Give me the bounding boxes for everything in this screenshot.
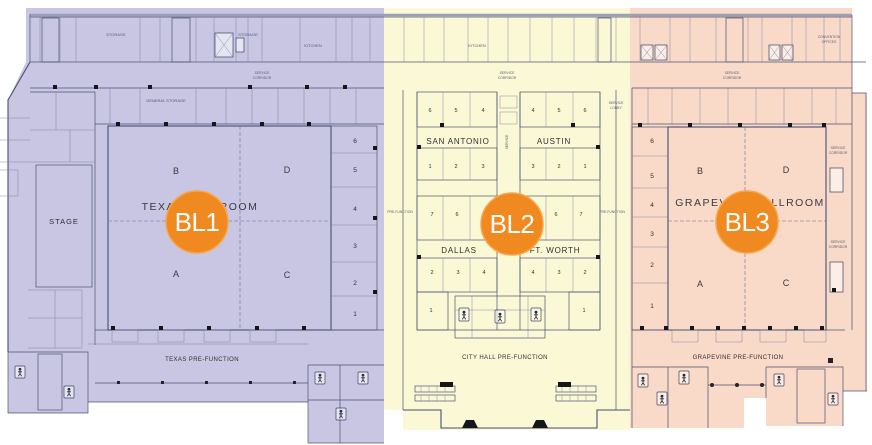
badge-bl2-label: BL2	[490, 209, 535, 239]
section-label: B	[173, 166, 179, 176]
room-number: 6	[583, 108, 586, 114]
general-storage-label: GENERAL STORAGE	[146, 98, 186, 103]
austin-label: AUSTIN	[537, 137, 571, 146]
offices-label: CONVENTION	[818, 35, 841, 39]
city-hall-prefunction-label: CITY HALL PRE-FUNCTION	[462, 355, 548, 361]
room-number: 3	[456, 270, 459, 276]
prefunction-side-label: PRE-FUNCTION	[599, 210, 625, 214]
service-lobby-label: SERVICE	[609, 101, 625, 105]
service-corridor-label: SERVICE	[725, 71, 741, 75]
badge-bl3[interactable]: BL3	[716, 191, 778, 253]
room-number: 2	[650, 262, 654, 269]
kitchen-label: KITCHEN	[304, 43, 322, 48]
service-corridor-label: CORRIDOR	[723, 76, 742, 80]
grapevine-prefunction-label: GRAPEVINE PRE-FUNCTION	[693, 355, 784, 361]
stage-label: STAGE	[49, 217, 79, 226]
room-number: 2	[557, 164, 560, 170]
badge-bl1[interactable]: BL1	[166, 191, 228, 253]
room-number: 4	[482, 270, 485, 276]
room-number: 4	[650, 202, 654, 209]
section-label: D	[284, 165, 291, 175]
room-number: 4	[531, 108, 534, 114]
section-label: C	[783, 278, 790, 288]
room-number: 1	[582, 308, 585, 314]
room-number: 1	[428, 164, 431, 170]
service-corridor-label: CORRIDOR	[829, 245, 848, 249]
prefunction-side-label: PRE-FUNCTION	[387, 210, 413, 214]
section-label: C	[284, 270, 291, 280]
room-number: 2	[454, 164, 457, 170]
section-label: D	[783, 165, 790, 175]
floor-plan-canvas: STORAGE STORAGE KITCHEN KITCHEN CONVENTI…	[0, 0, 872, 445]
room-number: 6	[554, 212, 557, 218]
room-number: 4	[353, 206, 357, 213]
section-label: B	[697, 166, 703, 176]
room-number: 3	[557, 270, 560, 276]
room-number: 6	[650, 138, 654, 145]
room-number: 1	[429, 308, 432, 314]
room-number: 4	[531, 270, 534, 276]
room-number: 3	[531, 164, 534, 170]
room-number: 6	[428, 108, 431, 114]
kitchen-label: KITCHEN	[468, 43, 486, 48]
texas-prefunction-label: TEXAS PRE-FUNCTION	[165, 357, 239, 363]
storage-label: STORAGE	[238, 32, 258, 37]
service-corridor-label: CORRIDOR	[498, 76, 517, 80]
ft-worth-label: FT. WORTH	[530, 246, 581, 255]
room-number: 1	[650, 303, 654, 310]
service-corridor-label: SERVICE	[255, 71, 271, 75]
room-number: 1	[353, 311, 357, 318]
service-corridor-label: CORRIDOR	[253, 76, 272, 80]
badge-bl1-label: BL1	[175, 207, 220, 237]
room-number: 5	[454, 108, 457, 114]
room-number: 5	[557, 108, 560, 114]
service-corridor-label: SERVICE	[831, 240, 847, 244]
room-number: 2	[430, 270, 433, 276]
storage-label: STORAGE	[106, 32, 126, 37]
room-number: 1	[583, 164, 586, 170]
dallas-label: DALLAS	[441, 246, 476, 255]
room-number: 6	[455, 212, 458, 218]
room-number: 2	[353, 280, 357, 287]
offices-label: OFFICES	[822, 40, 837, 44]
room-number: 7	[579, 212, 582, 218]
service-corridor-label: SERVICE	[500, 71, 516, 75]
san-antonio-label: SAN ANTONIO	[426, 137, 489, 146]
room-number: 4	[481, 108, 484, 114]
service-corridor-label: SERVICE	[505, 134, 509, 150]
section-label: A	[697, 279, 703, 289]
room-number: 2	[583, 270, 586, 276]
room-number: 3	[650, 231, 654, 238]
service-corridor-label: CORRIDOR	[829, 151, 848, 155]
section-label: A	[173, 269, 179, 279]
room-number: 5	[650, 173, 654, 180]
badge-bl2[interactable]: BL2	[481, 193, 543, 255]
room-number: 5	[353, 167, 357, 174]
badge-bl3-label: BL3	[725, 207, 770, 237]
room-number: 3	[353, 243, 357, 250]
service-lobby-label: LOBBY	[610, 106, 622, 110]
room-number: 7	[430, 212, 433, 218]
room-number: 3	[481, 164, 484, 170]
room-number: 6	[353, 138, 357, 145]
service-corridor-label: SERVICE	[831, 146, 847, 150]
floor-plan: STORAGE STORAGE KITCHEN KITCHEN CONVENTI…	[0, 0, 872, 445]
